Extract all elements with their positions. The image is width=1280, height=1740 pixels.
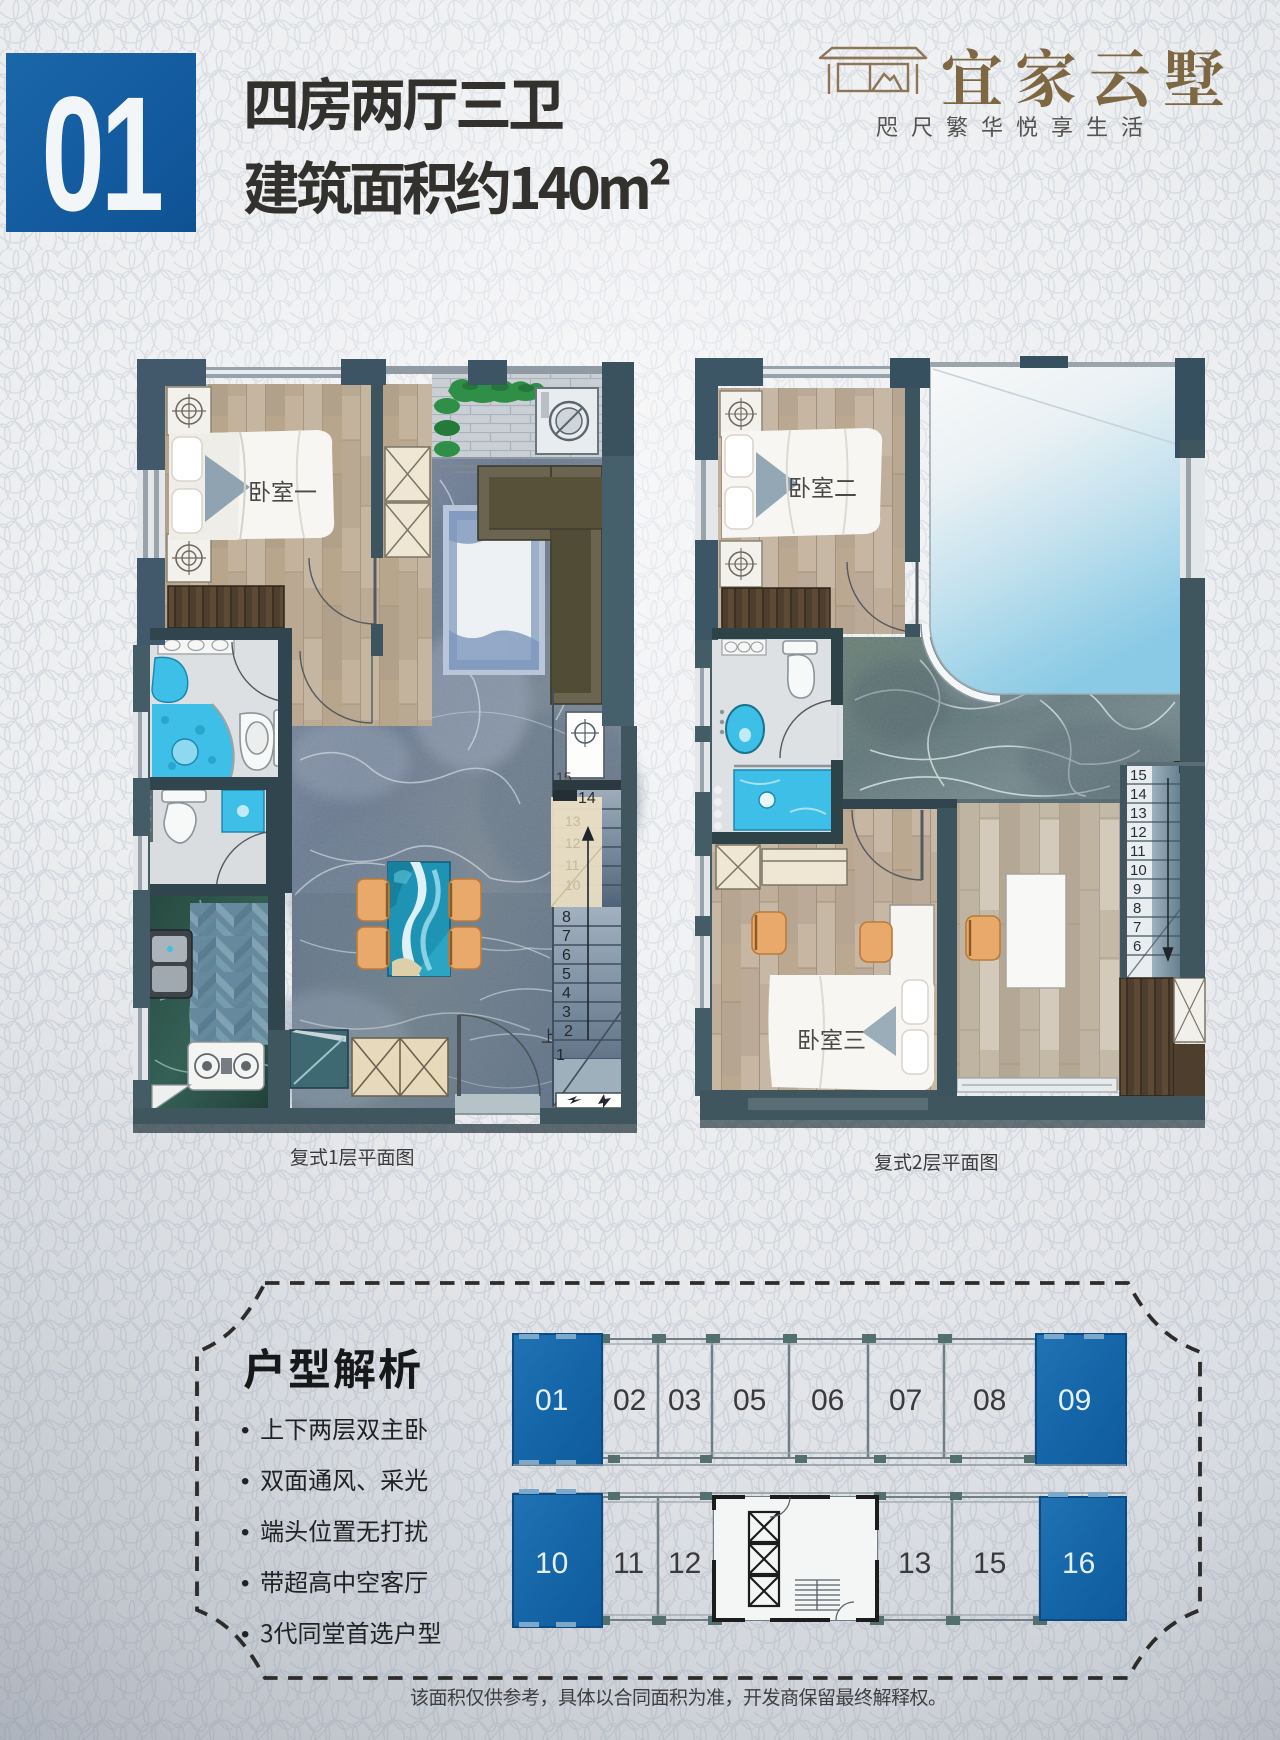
- svg-text:卧室二: 卧室二: [788, 469, 857, 503]
- svg-text:05: 05: [733, 1384, 766, 1417]
- svg-text:13: 13: [1130, 805, 1147, 822]
- svg-text:5: 5: [562, 966, 571, 983]
- svg-text:10: 10: [1130, 862, 1147, 879]
- svg-text:11: 11: [613, 1547, 644, 1580]
- svg-text:10: 10: [535, 1547, 568, 1580]
- svg-text:3: 3: [562, 1004, 571, 1021]
- svg-text:6: 6: [562, 947, 571, 964]
- svg-text:09: 09: [1058, 1384, 1091, 1417]
- svg-text:1: 1: [556, 1047, 565, 1064]
- svg-text:12: 12: [668, 1547, 701, 1580]
- svg-text:8: 8: [1133, 900, 1141, 917]
- svg-text:4: 4: [562, 985, 571, 1002]
- svg-text:02: 02: [613, 1384, 646, 1417]
- svg-text:卧室三: 卧室三: [797, 1021, 866, 1055]
- svg-text:9: 9: [1133, 881, 1141, 898]
- svg-text:10: 10: [565, 877, 581, 893]
- svg-text:6: 6: [1133, 938, 1141, 955]
- svg-text:07: 07: [889, 1384, 922, 1417]
- svg-text:11: 11: [565, 857, 580, 873]
- svg-text:8: 8: [562, 909, 571, 926]
- svg-text:2: 2: [564, 1023, 573, 1040]
- svg-text:14: 14: [1130, 786, 1147, 803]
- svg-text:12: 12: [565, 835, 581, 851]
- svg-text:11: 11: [1130, 843, 1146, 860]
- svg-text:06: 06: [811, 1384, 844, 1417]
- svg-text:卧室一: 卧室一: [248, 473, 317, 507]
- svg-text:7: 7: [562, 928, 571, 945]
- svg-text:01: 01: [535, 1384, 568, 1417]
- svg-text:15: 15: [1130, 767, 1147, 784]
- svg-text:16: 16: [1062, 1547, 1095, 1580]
- svg-text:7: 7: [1133, 919, 1141, 936]
- svg-text:13: 13: [898, 1547, 931, 1580]
- svg-text:08: 08: [973, 1384, 1006, 1417]
- svg-text:12: 12: [1130, 824, 1147, 841]
- svg-text:15: 15: [973, 1547, 1006, 1580]
- svg-text:13: 13: [565, 813, 581, 829]
- svg-text:14: 14: [578, 790, 596, 807]
- svg-text:03: 03: [668, 1384, 701, 1417]
